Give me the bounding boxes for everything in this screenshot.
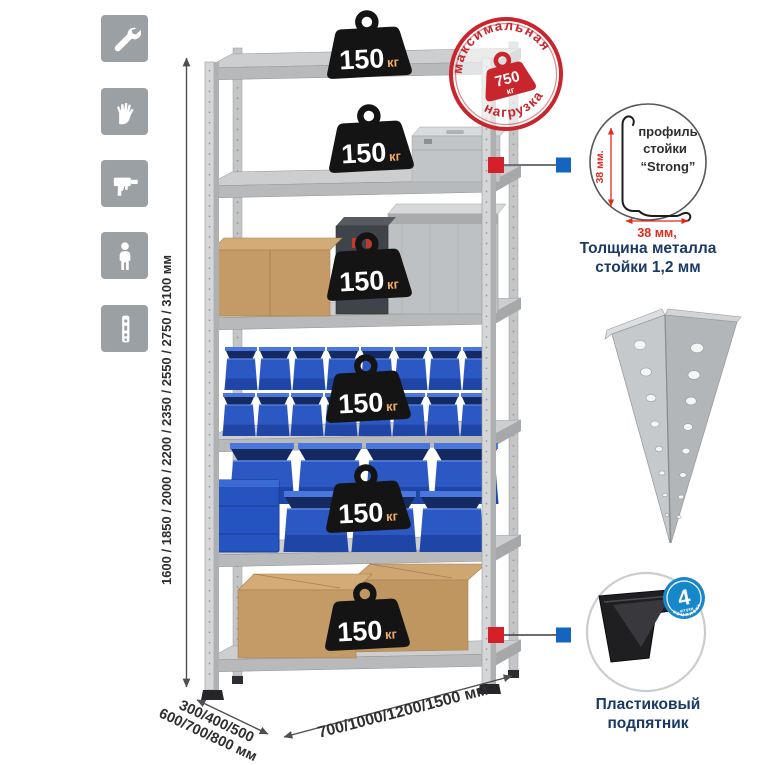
svg-text:150: 150 <box>339 265 386 297</box>
profile-label-1: профиль <box>638 124 697 139</box>
width-dimension: 700/1000/1200/1500 мм <box>284 676 512 742</box>
svg-text:150: 150 <box>337 615 384 647</box>
rack-front-left-post <box>205 62 219 690</box>
svg-text:кг: кг <box>387 276 400 292</box>
profile-caption-1: Толщина металла <box>580 240 717 257</box>
svg-text:150: 150 <box>341 137 388 169</box>
profile-label-2: стойки <box>643 141 687 156</box>
side-view-bin <box>213 480 279 552</box>
weight-badge: 150 кг <box>326 105 414 173</box>
blue-marker <box>556 628 571 643</box>
red-marker <box>488 627 504 643</box>
svg-text:кг: кг <box>385 626 398 642</box>
load-unit: кг <box>387 54 400 70</box>
weight-badge: 150 кг <box>324 11 412 79</box>
height-dimension-label: 1600 / 1850 / 2000 / 2200 / 2350 / 2550 … <box>159 255 174 585</box>
profile-dim-horizontal: 38 мм, <box>637 226 676 240</box>
height-dimension: 1600 / 1850 / 2000 / 2200 / 2350 / 2550 … <box>159 58 187 687</box>
blue-marker <box>556 158 571 173</box>
shelving-diagram: 1600 / 1850 / 2000 / 2200 / 2350 / 2550 … <box>0 0 765 765</box>
corner-post-image <box>605 309 741 543</box>
strut-profile-detail: 38 мм. 38 мм, профиль стойки “Strong” То… <box>580 104 717 276</box>
profile-label-3: “Strong” <box>641 159 696 174</box>
cardboard-box <box>212 238 342 316</box>
profile-dim-vertical: 38 мм. <box>594 150 606 183</box>
foot-caption-2: подпятник <box>607 715 688 732</box>
profile-caption-2: стойки 1,2 мм <box>595 259 700 276</box>
svg-text:кг: кг <box>389 148 402 164</box>
svg-text:150: 150 <box>338 497 385 529</box>
load-value: 150 <box>339 43 386 75</box>
svg-text:150: 150 <box>338 387 385 419</box>
max-load-stamp: максимальная нагрузка 750 кг <box>438 5 573 141</box>
width-dimension-label: 700/1000/1200/1500 мм <box>316 682 490 742</box>
callout-connector-bottom <box>488 627 571 643</box>
foot-caption-1: Пластиковый <box>596 696 701 713</box>
callout-connector-top <box>488 157 571 173</box>
red-marker <box>488 157 504 173</box>
depth-dimension: 300/400/500 600/700/800 мм <box>156 691 268 765</box>
product-infographic: 1600 / 1850 / 2000 / 2200 / 2350 / 2550 … <box>0 0 765 765</box>
svg-text:кг: кг <box>386 398 399 414</box>
svg-text:кг: кг <box>386 508 399 524</box>
rack-front-right-post <box>482 58 496 684</box>
rack-back-right-post <box>509 42 518 670</box>
